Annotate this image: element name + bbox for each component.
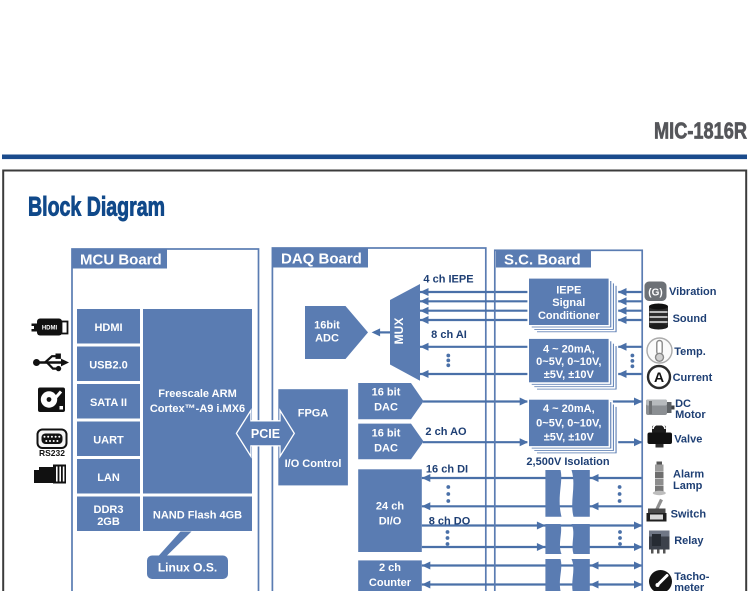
svg-text:LAN: LAN <box>97 472 120 484</box>
svg-text:FPGA: FPGA <box>298 408 329 420</box>
svg-text:16 bit: 16 bit <box>372 387 401 399</box>
svg-text:2 ch AO: 2 ch AO <box>425 426 467 438</box>
svg-text:S.C. Board: S.C. Board <box>504 252 581 269</box>
svg-text:Freescale ARM: Freescale ARM <box>158 388 236 400</box>
svg-text:Vibration: Vibration <box>669 286 717 298</box>
svg-text:RS232: RS232 <box>39 448 65 458</box>
svg-text:meter: meter <box>674 582 705 591</box>
svg-text:Counter: Counter <box>369 577 412 589</box>
svg-text:Lamp: Lamp <box>673 480 703 492</box>
svg-text:PCIE: PCIE <box>251 427 280 441</box>
svg-text:16 ch DI: 16 ch DI <box>426 464 468 476</box>
svg-text:±5V, ±10V: ±5V, ±10V <box>544 432 595 444</box>
svg-text:Sound: Sound <box>673 313 707 325</box>
svg-text:USB2.0: USB2.0 <box>89 360 128 372</box>
svg-text:Alarm: Alarm <box>673 469 704 481</box>
svg-text:Conditioner: Conditioner <box>538 310 600 322</box>
svg-text:ADC: ADC <box>315 333 339 345</box>
svg-text:NAND Flash 4GB: NAND Flash 4GB <box>153 510 242 522</box>
svg-text:24 ch: 24 ch <box>376 501 404 513</box>
svg-text:Linux O.S.: Linux O.S. <box>158 561 217 575</box>
svg-text:Motor: Motor <box>675 409 706 421</box>
svg-text:Signal: Signal <box>552 297 585 309</box>
svg-text:MUX: MUX <box>392 318 406 345</box>
svg-text:DAQ Board: DAQ Board <box>281 251 362 268</box>
svg-text:UART: UART <box>93 435 124 447</box>
svg-text:4 ~ 20mA,: 4 ~ 20mA, <box>543 403 595 415</box>
svg-text:Cortex™-A9 i.MX6: Cortex™-A9 i.MX6 <box>150 403 245 415</box>
svg-text:16bit: 16bit <box>314 320 340 332</box>
svg-text:8 ch AI: 8 ch AI <box>431 329 467 341</box>
svg-text:0~5V, 0~10V,: 0~5V, 0~10V, <box>536 418 601 430</box>
svg-text:A: A <box>654 369 664 385</box>
svg-text:2 ch: 2 ch <box>379 562 401 574</box>
svg-text:2,500V Isolation: 2,500V Isolation <box>526 456 609 468</box>
svg-text:DAC: DAC <box>374 443 398 455</box>
svg-text:MCU Board: MCU Board <box>80 252 162 269</box>
svg-text:I/O Control: I/O Control <box>285 458 342 470</box>
svg-text:IEPE: IEPE <box>556 284 581 296</box>
svg-text:Temp.: Temp. <box>674 346 706 358</box>
svg-text:±5V, ±10V: ±5V, ±10V <box>544 369 595 381</box>
svg-text:Relay: Relay <box>674 535 704 547</box>
svg-text:HDMI: HDMI <box>94 322 122 334</box>
svg-text:16 bit: 16 bit <box>372 428 401 440</box>
svg-text:DAC: DAC <box>374 402 398 414</box>
svg-text:2GB: 2GB <box>97 516 120 528</box>
svg-text:HDMI: HDMI <box>42 326 58 332</box>
svg-text:SATA II: SATA II <box>90 397 127 409</box>
svg-text:MIC-1816R: MIC-1816R <box>654 118 747 144</box>
svg-text:4 ch IEPE: 4 ch IEPE <box>423 274 473 286</box>
svg-text:(G): (G) <box>648 288 662 299</box>
svg-text:Valve: Valve <box>674 434 702 446</box>
svg-text:DI/O: DI/O <box>379 516 402 528</box>
svg-text:Block Diagram: Block Diagram <box>28 192 165 222</box>
svg-text:Current: Current <box>673 372 713 384</box>
svg-text:Switch: Switch <box>671 509 707 521</box>
svg-text:DDR3: DDR3 <box>94 504 124 516</box>
svg-text:0~5V, 0~10V,: 0~5V, 0~10V, <box>536 356 601 368</box>
svg-text:4 ~ 20mA,: 4 ~ 20mA, <box>543 343 595 355</box>
